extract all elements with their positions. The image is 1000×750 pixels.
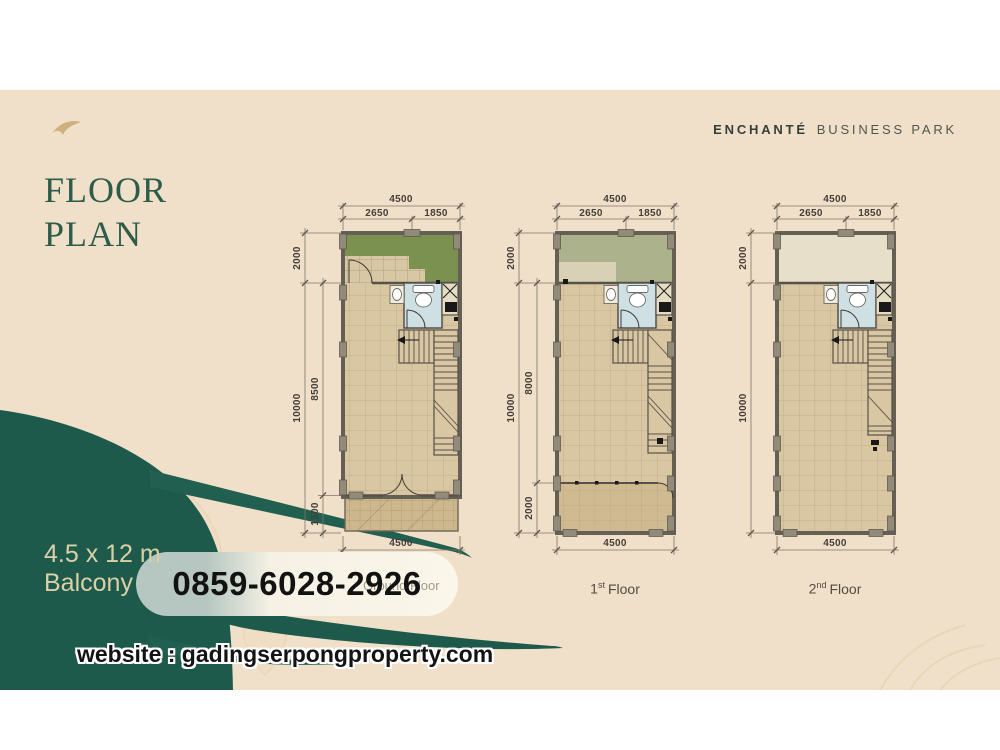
dim-label: 2650 (579, 208, 603, 219)
dim-label: 8000 (524, 371, 535, 395)
dim-label: 10000 (738, 393, 749, 422)
bird-icon (50, 117, 82, 139)
plan-label-word: Floor (829, 581, 861, 597)
brand-subname: BUSINESS PARK (817, 122, 957, 137)
dim-label: 4500 (603, 538, 627, 549)
dim-label: 10000 (506, 393, 517, 422)
dim-label: 4500 (823, 538, 847, 549)
plan-label-word: Floor (608, 581, 640, 597)
dim-label: 8500 (310, 377, 321, 401)
plan-label-second: 2ndFloor (735, 580, 935, 597)
dim-label: 4500 (823, 194, 847, 205)
dim-label: 1850 (424, 208, 448, 219)
dim-label: 4500 (389, 194, 413, 205)
plan-label-first: 1stFloor (515, 580, 715, 597)
dim-label: 2000 (738, 246, 749, 270)
floor-plan-first-drawing: 4500 2650 1850 2000 10000 8000 2000 4500 (501, 190, 721, 610)
floor-plan-ground-drawing: 4500 2650 1850 2000 10000 8500 1500 4500 (287, 190, 507, 610)
building (554, 230, 675, 537)
dim-label: 1850 (858, 208, 882, 219)
page-title: FLOOR PLAN (44, 168, 167, 256)
website-text: website : gadingserpongproperty.com (77, 641, 493, 668)
roof-deck-area (559, 235, 672, 283)
dim-label: 2000 (292, 246, 303, 270)
building (774, 230, 895, 537)
floor-plan-second-drawing: 4500 2650 1850 2000 10000 4500 (721, 190, 941, 610)
floor-plan-first: 4500 2650 1850 2000 10000 8000 2000 4500 (501, 190, 721, 610)
page-title-line2: PLAN (44, 212, 167, 256)
palm-watermark (880, 625, 1000, 690)
dim-label: 2650 (365, 208, 389, 219)
plan-label-sup: st (598, 580, 605, 590)
dim-label: 2000 (524, 496, 535, 520)
floor-plan-second: 4500 2650 1850 2000 10000 4500 (721, 190, 941, 610)
dim-label: 4500 (603, 194, 627, 205)
brand-logo: ENCHANTÉBUSINESS PARK (713, 122, 957, 137)
brand-name: ENCHANTÉ (713, 122, 808, 137)
dim-label: 2000 (506, 246, 517, 270)
building (340, 230, 461, 532)
void-area (779, 235, 892, 283)
dim-label: 4500 (389, 538, 413, 549)
flyer-canvas: ENCHANTÉBUSINESS PARK FLOOR PLAN 4500 26… (0, 0, 1000, 750)
phone-number: 0859-6028-2926 (136, 552, 458, 616)
dim-label: 2650 (799, 208, 823, 219)
plan-label-num: 1 (590, 581, 598, 597)
terrace (345, 497, 458, 531)
page-title-line1: FLOOR (44, 168, 167, 212)
floor-plan-ground: 4500 2650 1850 2000 10000 8500 1500 4500 (287, 190, 507, 610)
dim-label: 1500 (310, 502, 321, 526)
dim-label: 1850 (638, 208, 662, 219)
plan-label-sup: nd (816, 580, 826, 590)
garden-area (345, 235, 458, 283)
dim-label: 10000 (292, 393, 303, 422)
